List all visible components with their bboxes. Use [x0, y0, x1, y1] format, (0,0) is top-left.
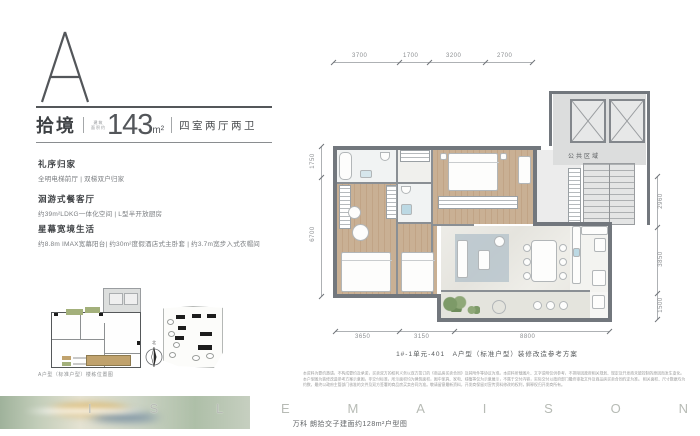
balcony-stool	[559, 301, 568, 310]
wall-segment	[333, 294, 441, 298]
armchair	[494, 236, 505, 247]
dim-line-left	[321, 146, 322, 296]
foyer-closet	[400, 150, 430, 162]
public-area-label: 公共区域	[568, 151, 600, 160]
keyplan-partition	[80, 313, 81, 339]
dim-label: 2700	[497, 53, 512, 59]
area-prefix-line2: 面积约	[91, 125, 106, 130]
round-table	[348, 206, 361, 219]
keyplan-balcony-green	[85, 307, 100, 313]
master-bed	[448, 153, 498, 191]
core-wall	[549, 91, 552, 146]
dim-tick	[530, 60, 536, 66]
master-wardrobe	[438, 196, 518, 209]
site-tree	[173, 342, 180, 348]
watermark-letter: E	[281, 401, 290, 416]
wardrobe	[386, 185, 397, 219]
dining-chair	[523, 244, 531, 252]
shower	[401, 204, 412, 215]
site-building	[192, 314, 201, 318]
keyplan-door-mark	[137, 341, 140, 345]
partition	[398, 222, 433, 224]
kitchen-sink	[573, 248, 580, 257]
wall-segment	[333, 146, 541, 150]
dim-label: 3700	[352, 53, 367, 59]
watermark-letter: S	[149, 401, 158, 416]
keyplan-caption: A户型（标准户型）楼栋位置图	[38, 371, 113, 378]
feature-body: 全明电梯前厅 | 双梯双户归家	[38, 173, 124, 183]
bed-pillow-line	[402, 260, 435, 261]
keyplan-balcony-tan	[86, 355, 131, 366]
dim-label: 1500	[658, 288, 664, 322]
dim-tick	[319, 294, 325, 300]
watermark-letter: S	[544, 401, 553, 416]
disclaimer-line: 本户型图为装修改造参考方案示意图，非交付标准，所示面积均为建筑面积，图中家具、家…	[303, 377, 642, 381]
bathtub	[339, 152, 352, 180]
core-wall	[549, 91, 650, 94]
dim-line-top	[333, 62, 532, 63]
footer-caption: 万科 朗拾交子建面约128m²户型图	[0, 419, 700, 429]
divider-top	[36, 106, 272, 108]
sink	[360, 170, 372, 178]
site-building	[200, 332, 212, 336]
feature-body: 约8.8m IMAX宽幕阳台| 约30m²度假酒店式主卧套 | 约3.7m宽步入…	[38, 238, 260, 248]
area-unit: m²	[152, 125, 164, 136]
utility-appliance	[592, 295, 605, 309]
brochure-page: 拾境 建筑 面积约 143 m² 四室两厅两卫 礼序归家 全明电梯前厅 | 双梯…	[0, 0, 700, 436]
feature-block: 星幕宽境生活 约8.8m IMAX宽幕阳台| 约30m²度假酒店式主卧套 | 约…	[38, 223, 260, 248]
site-tree	[168, 331, 175, 337]
site-building	[178, 326, 186, 330]
keyplan-legend-swatch-green	[62, 362, 71, 366]
dim-label: 1700	[403, 53, 418, 59]
wall-segment	[533, 146, 537, 226]
keyplan-legend-text	[73, 357, 86, 359]
balcony-plants	[443, 296, 467, 312]
disclaimer-line: 本资料为要约邀请，不构成要约及承诺，买卖双方的权利义务以双方签订的《商品房买卖合…	[303, 372, 684, 376]
dim-label: 3200	[446, 53, 461, 59]
dim-tick	[607, 329, 613, 335]
sofa	[457, 240, 468, 278]
watermark-letter: M	[348, 401, 359, 416]
stair-divider	[609, 164, 610, 226]
dim-line-bottom	[335, 331, 609, 332]
nightstand	[500, 153, 507, 160]
watermark-letter: N	[679, 401, 688, 416]
disclaimer: 本资料为要约邀请，不构成要约及承诺，买卖双方的权利义务以双方签订的《商品房买卖合…	[303, 371, 685, 388]
balcony-stool	[546, 301, 555, 310]
feature-heading: 礼序归家	[38, 158, 124, 170]
balcony-plants	[466, 306, 480, 314]
site-tree	[206, 353, 214, 359]
fridge	[594, 238, 606, 252]
area-prefix: 建筑 面积约	[91, 120, 106, 130]
keyplan-door-mark	[54, 313, 58, 316]
siteplan	[163, 306, 223, 368]
dim-label: 3150	[414, 334, 429, 340]
site-building	[198, 345, 212, 350]
dining-chair	[559, 258, 567, 266]
dining-chair	[523, 258, 531, 266]
bed-pillow-line	[449, 162, 499, 163]
bed	[401, 252, 434, 292]
dining-chair	[559, 244, 567, 252]
keyplan-partition	[104, 353, 140, 354]
divider-title-bottom	[36, 142, 272, 143]
plan-letter-a-icon	[36, 30, 94, 104]
partition	[432, 224, 474, 226]
staircase	[583, 163, 635, 225]
wall-segment	[333, 146, 337, 298]
floorplan-caption: 1#-1单元-401 A户型（标准户型）装修改造参考方案	[337, 348, 637, 358]
bed-pillow-line	[342, 260, 392, 261]
bed	[341, 252, 391, 292]
watermark: I S L E M A I S O N	[88, 400, 688, 416]
keyplan-elevator	[109, 293, 123, 305]
desk	[518, 156, 531, 184]
dim-label: 6700	[310, 217, 316, 251]
feature-body: 约39m²LDKG一体化空间 | L型半开放厨房	[38, 208, 162, 218]
dim-label: 2960	[658, 184, 664, 218]
dining-chair	[559, 272, 567, 280]
core-wall	[647, 91, 650, 225]
kitchen-counter	[581, 226, 608, 235]
keyplan-legend-swatch-tan	[62, 356, 71, 360]
shaft-hatch	[568, 168, 581, 225]
site-building	[207, 314, 216, 318]
site-tree	[167, 319, 174, 325]
dim-label: 1750	[310, 144, 316, 178]
watermark-letter: L	[216, 401, 223, 416]
site-building	[175, 336, 184, 340]
feature-heading: 洄游式餐客厅	[38, 193, 162, 205]
balcony-chair	[492, 300, 506, 314]
keyplan-door-mark	[99, 313, 103, 316]
divider-bar	[83, 117, 84, 133]
coffee-table	[478, 250, 490, 270]
watermark-letter: I	[88, 401, 92, 416]
partition	[337, 182, 433, 184]
elevator-shaft-icon	[609, 99, 645, 143]
page-title: 拾境	[36, 112, 76, 138]
divider-bar	[171, 117, 172, 133]
compass-icon	[145, 345, 163, 367]
dim-label: 3850	[658, 242, 664, 276]
feature-block: 礼序归家 全明电梯前厅 | 双梯双户归家	[38, 158, 124, 183]
watermark-letter: I	[483, 401, 487, 416]
watermark-letter: O	[611, 401, 621, 416]
site-tree	[169, 352, 176, 358]
dining-table	[531, 240, 557, 282]
keyplan-partition	[52, 339, 104, 340]
keyplan-elevator	[124, 293, 138, 305]
site-tree	[192, 355, 200, 361]
feature-heading: 星幕宽境生活	[38, 223, 260, 235]
layout-desc: 四室两厅两卫	[179, 118, 257, 133]
watermark-letter: A	[416, 401, 425, 416]
wall-segment	[608, 222, 612, 322]
dim-label: 3650	[355, 334, 370, 340]
elevator-shaft-icon	[570, 99, 606, 143]
area-value: 143	[107, 109, 152, 142]
round-table	[352, 224, 369, 241]
feature-block: 洄游式餐客厅 约39m²LDKG一体化空间 | L型半开放厨房	[38, 193, 162, 218]
keyplan-legend-text	[73, 363, 86, 365]
keyplan-balcony-green	[66, 309, 83, 315]
site-building	[176, 315, 185, 319]
kitchen-appliance	[592, 270, 606, 286]
dining-chair	[523, 272, 531, 280]
nightstand	[440, 153, 447, 160]
wall-segment	[437, 318, 612, 322]
balcony-stool	[533, 301, 542, 310]
title-row: 拾境 建筑 面积约 143 m² 四室两厅两卫	[36, 111, 284, 139]
dim-label: 8800	[520, 334, 535, 340]
balcony-window-line	[441, 290, 590, 292]
